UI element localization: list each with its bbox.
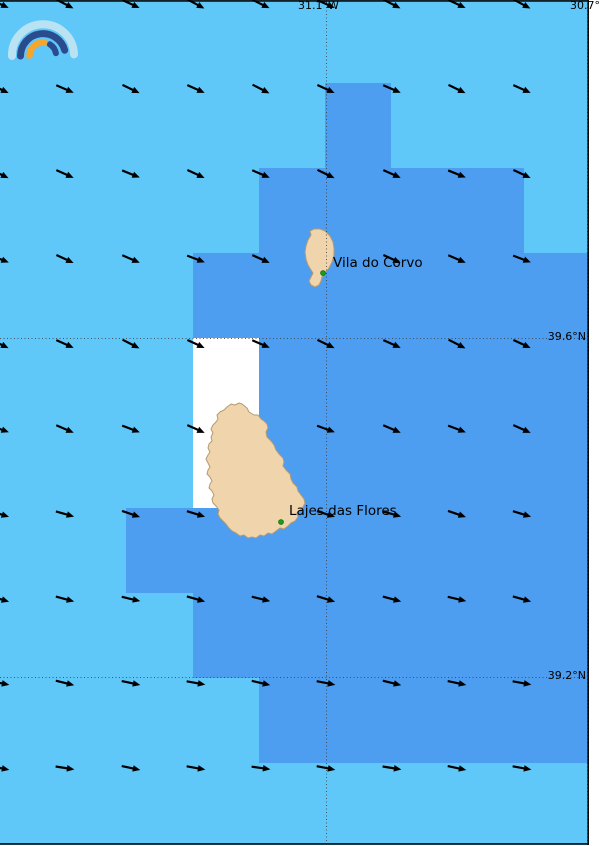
wind-arrow [447,763,467,773]
wind-arrow [121,167,141,180]
wind-arrow [0,337,10,351]
wind-arrow [186,82,206,96]
latitude-label-39-6n: 39.6°N [548,331,586,344]
weather-cell-dark [126,508,589,593]
wind-arrow [121,82,141,96]
town-label-vila-do-corvo: Vila do Corvo [333,256,423,272]
wind-arrow [121,763,141,773]
wind-arrow [186,167,206,181]
wind-arrow [316,763,336,773]
weather-cell-dark [259,338,589,508]
wind-arrow [382,763,402,772]
wind-arrow [251,763,271,772]
wind-arrow [55,593,75,604]
wind-arrow [0,252,10,265]
wind-arrow [0,763,10,773]
wind-arrow [55,252,75,266]
town-label-lajes-das-flores: Lajes das Flores [289,504,397,520]
wind-arrow [55,422,75,435]
wind-arrow [55,677,75,688]
weather-map-viewport[interactable] [0,0,589,845]
wind-arrow [512,82,532,96]
wind-arrow [55,82,75,95]
weather-cell-dark [193,593,589,678]
wind-arrow [55,167,75,181]
weather-cell-dark [259,168,524,253]
wind-arrow [55,763,75,772]
wind-arrow [186,0,206,11]
wind-arrow [0,82,10,96]
wind-arrow [512,0,532,11]
wind-arrow [121,678,141,688]
app-window: { "map": { "colors": { "ocean_light": "#… [0,0,600,846]
orange-arc [30,43,45,56]
town-dot-corvo [321,271,326,276]
longitude-label-31-1w: 31.1°W [298,0,339,13]
wind-arrow [186,678,206,688]
wind-arrow [121,252,141,265]
navy-short-arc [50,44,56,53]
wind-arrow [55,508,75,520]
wind-arrow [0,167,10,181]
town-dot-flores [279,520,284,525]
weather-cell-dark [325,83,391,168]
wind-arrow [251,82,271,97]
map-render-layer [0,0,589,845]
wind-arrow [121,594,141,605]
wind-arrow [512,763,532,773]
wind-arrow [121,337,141,352]
wind-arrow [55,337,75,351]
wind-arrow [0,423,10,436]
rainbow-logo-icon [12,24,74,56]
wind-arrow [121,423,141,436]
wind-arrow [0,678,10,688]
wind-arrow [186,763,206,773]
wind-arrow [447,82,467,96]
latitude-label-39-2n: 39.2°N [548,670,586,683]
wind-arrow [0,508,10,520]
weather-cell-dark [259,678,589,763]
longitude-label-30-7w: 30.7°W [570,0,600,13]
wind-arrow [0,593,10,605]
